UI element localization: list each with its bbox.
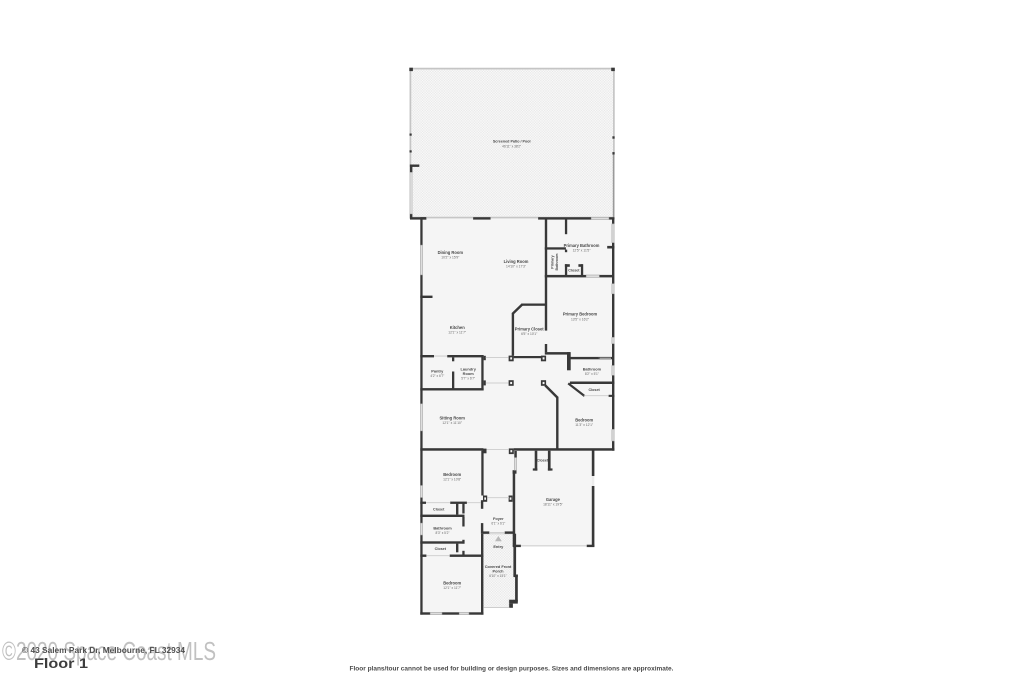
svg-text:12'1" x 11'7": 12'1" x 11'7" (448, 331, 467, 335)
svg-text:Foyer: Foyer (493, 516, 504, 521)
svg-text:Closet: Closet (433, 508, 445, 512)
svg-text:Closet: Closet (588, 388, 600, 392)
svg-text:14'10" x 17'3": 14'10" x 17'3" (506, 265, 527, 269)
svg-text:13'5" x 16'2": 13'5" x 16'2" (571, 317, 590, 321)
svg-text:Primary Bathroom: Primary Bathroom (564, 243, 600, 248)
svg-text:Primary Closet: Primary Closet (515, 327, 545, 332)
svg-text:Closet: Closet (435, 547, 447, 551)
svg-text:Living Room: Living Room (504, 259, 529, 264)
svg-text:Closet: Closet (537, 459, 549, 463)
svg-text:Entry: Entry (493, 544, 504, 549)
svg-text:12'1" x 11'10": 12'1" x 11'10" (442, 421, 462, 425)
svg-text:10'2" x 15'9": 10'2" x 15'9" (441, 256, 460, 260)
svg-text:Floor plans/tour cannot be use: Floor plans/tour cannot be used for buil… (350, 666, 674, 673)
svg-text:6'1" x 6'1": 6'1" x 6'1" (491, 521, 505, 525)
svg-text:46'11" x 38'2": 46'11" x 38'2" (502, 144, 521, 148)
svg-text:12'5" x 11'5": 12'5" x 11'5" (573, 249, 592, 253)
svg-text:8'2" x 5'1": 8'2" x 5'1" (585, 372, 599, 376)
svg-text:Screened Patio / Pool: Screened Patio / Pool (493, 140, 531, 144)
svg-text:12'1" x 11'7": 12'1" x 11'7" (443, 586, 462, 590)
svg-text:© 43 Salem Park Dr, Melbourne,: © 43 Salem Park Dr, Melbourne, FL 32934 (22, 646, 185, 655)
svg-text:18'11" x 19'5": 18'11" x 19'5" (543, 503, 563, 507)
svg-text:5'7" x 6'7": 5'7" x 6'7" (461, 376, 475, 380)
svg-text:Kitchen: Kitchen (450, 325, 466, 330)
svg-text:Primary Bedroom: Primary Bedroom (563, 312, 598, 317)
svg-text:Bedroom: Bedroom (575, 418, 593, 423)
svg-text:4'2" x 6'7": 4'2" x 6'7" (430, 374, 444, 378)
svg-text:Porch: Porch (492, 569, 504, 574)
svg-text:8'3" x 5'2": 8'3" x 5'2" (436, 531, 450, 535)
svg-text:Pantry: Pantry (431, 369, 444, 374)
svg-text:Bathroom: Bathroom (583, 367, 602, 372)
svg-text:Floor 1: Floor 1 (34, 656, 89, 671)
svg-text:Bathroom: Bathroom (433, 526, 452, 531)
svg-text:Garage: Garage (546, 497, 561, 502)
svg-text:Room: Room (463, 371, 475, 376)
svg-text:Bedroom: Bedroom (443, 472, 461, 477)
svg-text:Primary: Primary (551, 255, 555, 268)
svg-text:Sitting Room: Sitting Room (439, 415, 465, 420)
svg-text:12'1" x 10'8": 12'1" x 10'8" (443, 478, 462, 482)
svg-text:11'3" x 12'1": 11'3" x 12'1" (575, 423, 594, 427)
svg-text:Bathroom: Bathroom (555, 254, 559, 271)
svg-text:Bedroom: Bedroom (443, 581, 461, 586)
svg-text:6'5" x 10'1": 6'5" x 10'1" (521, 332, 538, 336)
svg-text:6'10" x 15'1": 6'10" x 15'1" (489, 574, 506, 578)
svg-text:Dining Room: Dining Room (438, 250, 464, 255)
svg-text:Closet: Closet (568, 269, 580, 273)
